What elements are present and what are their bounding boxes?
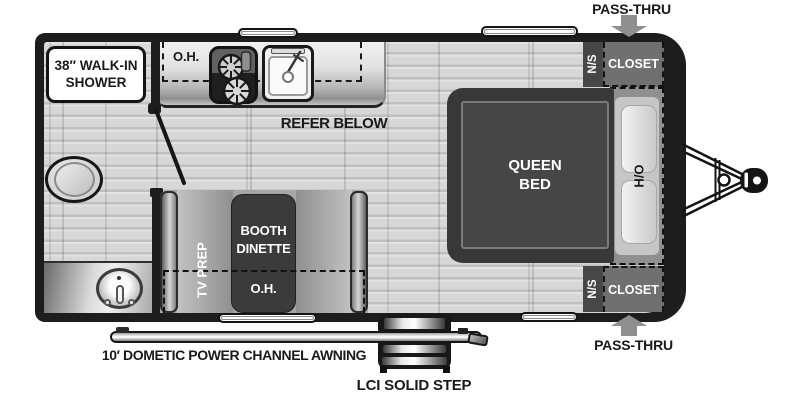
- roof-vent-icon: [238, 28, 298, 38]
- booth-dinette-label: BOOTH DINETTE: [231, 222, 296, 257]
- floorplan-canvas: QUEEN BED CLOSET CLOSET: [0, 0, 800, 400]
- closet-bottom-label: CLOSET: [608, 283, 659, 297]
- kitchen-overhead-label: O.H.: [166, 49, 206, 65]
- toilet-bowl: [54, 162, 95, 197]
- step-foot: [380, 366, 387, 373]
- window-icon: [520, 312, 578, 322]
- hitch-icon: [682, 144, 768, 217]
- step-foot: [443, 366, 450, 373]
- window-icon: [481, 26, 578, 37]
- entry-door-icon: [218, 313, 317, 323]
- step-tread: [383, 345, 446, 353]
- pass-thru-label-bottom: PASS-THRU: [586, 337, 681, 354]
- ns-label-top: N/S: [587, 54, 599, 73]
- door-hinge-post: [148, 103, 161, 114]
- booth-dinette-line2: DINETTE: [231, 240, 296, 258]
- shower-wall: [151, 42, 160, 108]
- queen-bed-mattress: QUEEN BED: [461, 101, 609, 249]
- refer-below-label: REFER BELOW: [278, 115, 390, 133]
- closet-top: CLOSET: [603, 42, 664, 87]
- booth-dinette-line1: BOOTH: [231, 222, 296, 240]
- pass-thru-arrow-up-icon: [621, 326, 637, 336]
- queen-bed-label-line1: QUEEN: [508, 156, 561, 176]
- awning-label: 10′ DOMETIC POWER CHANNEL AWNING: [98, 347, 370, 364]
- bath-faucet: [116, 285, 124, 304]
- awning-bracket: [458, 328, 468, 334]
- awning-bar-icon: [110, 331, 482, 343]
- pillow: [621, 180, 657, 244]
- pass-thru-arrow-up-icon: [611, 315, 647, 326]
- sink-knob: [104, 299, 111, 306]
- ho-label: H/O: [632, 164, 647, 187]
- kitchen-sink-basin: [268, 56, 308, 96]
- walk-in-shower: 38″ WALK-IN SHOWER: [46, 46, 146, 103]
- kitchen-sink-ledge: [271, 48, 305, 54]
- dinette-overhead-label: O.H.: [231, 281, 296, 297]
- queen-bed-label-line2: BED: [519, 175, 551, 195]
- awning-bracket: [116, 327, 129, 333]
- shower-label-line2: SHOWER: [66, 75, 127, 92]
- tv-prep-label: TV PREP: [195, 242, 210, 298]
- cooktop-icon: [209, 46, 258, 104]
- shower-label-line1: 38″ WALK-IN: [55, 58, 138, 75]
- step-tread: [384, 318, 445, 329]
- pillow: [621, 105, 657, 173]
- awning-end-cap: [467, 332, 489, 346]
- closet-bottom: CLOSET: [603, 266, 664, 312]
- ns-label-bottom: N/S: [587, 279, 599, 298]
- pass-thru-arrow-down-icon: [611, 26, 647, 37]
- step-label: LCI SOLID STEP: [350, 377, 478, 395]
- pass-thru-label-top: PASS-THRU: [584, 1, 679, 18]
- sink-knob: [128, 299, 135, 306]
- sink-drain-dot: [117, 276, 121, 280]
- step-tread: [382, 357, 447, 365]
- closet-top-label: CLOSET: [608, 57, 659, 71]
